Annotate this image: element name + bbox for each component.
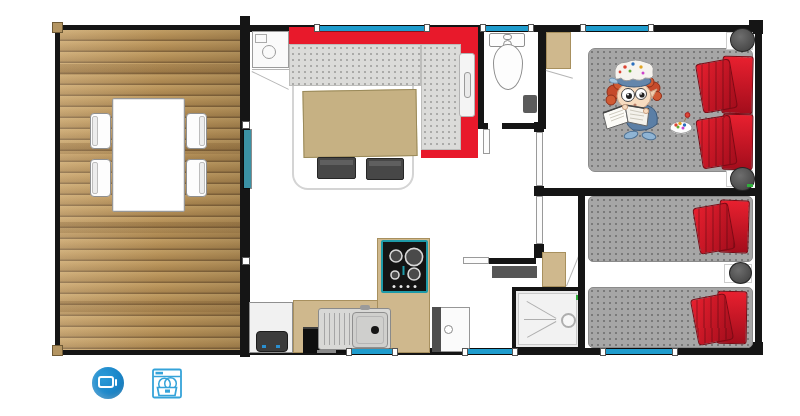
- coffee-table: [302, 89, 417, 158]
- sink-drainer-line: [334, 313, 335, 345]
- window: [352, 349, 392, 354]
- window-end-marker: [580, 24, 586, 32]
- terrace-chair: [186, 113, 207, 149]
- sink-drainer-line: [329, 313, 330, 345]
- hall-wall-low: [488, 258, 536, 264]
- door-handle-marker: [242, 121, 250, 129]
- sink-drainer-line: [339, 313, 340, 345]
- wc-bin: [523, 95, 537, 113]
- deck-corner-post: [52, 22, 63, 33]
- nightstand-top: [730, 167, 755, 191]
- window-end-marker: [346, 348, 352, 356]
- sink-faucet: [360, 305, 370, 310]
- window-end-marker: [314, 24, 320, 32]
- plan-marker: [747, 184, 753, 187]
- window: [320, 26, 424, 31]
- sink-drainer-line: [349, 313, 350, 345]
- refrigerator-ring: [262, 45, 276, 59]
- sofa-seat-horizontal: [289, 44, 421, 86]
- hall-wall-post: [534, 122, 544, 132]
- bedroom-door-leaf: [536, 132, 543, 186]
- bedroom-door-leaf: [536, 196, 543, 244]
- wall-cap: [240, 16, 250, 32]
- sofa-seat-vertical: [421, 44, 461, 150]
- hob-burners: [383, 242, 426, 291]
- nightstand-top: [729, 262, 752, 284]
- window-end-marker: [600, 348, 606, 356]
- wc-wall-left: [478, 32, 484, 123]
- terrace-chair: [186, 159, 207, 197]
- oven-handle: [317, 350, 336, 353]
- tv-screen: [98, 376, 114, 388]
- shower-drain: [561, 313, 576, 328]
- wc-wall-right: [538, 32, 546, 123]
- nightstand-top: [730, 28, 755, 52]
- bed-pillow: [695, 115, 737, 170]
- twin-bedroom-wall-left: [578, 196, 585, 348]
- hall-cabinet: [542, 252, 566, 287]
- stool: [317, 157, 356, 179]
- appliance-indicator: [276, 345, 280, 348]
- window-end-marker: [424, 24, 430, 32]
- shower-slope-line: [524, 319, 556, 320]
- window-end-marker: [392, 348, 398, 356]
- bedroom-divider-wall: [535, 188, 762, 196]
- window-end-marker: [672, 348, 678, 356]
- window: [486, 26, 528, 31]
- refrigerator-tray: [255, 34, 267, 43]
- window: [606, 349, 672, 354]
- tv-side-bar: [115, 379, 117, 386]
- kitchen-appliance-door: [256, 331, 288, 352]
- sink-drainer-line: [344, 313, 345, 345]
- window-end-marker: [648, 24, 654, 32]
- sink-drain: [371, 326, 379, 334]
- window-end-marker: [480, 24, 486, 32]
- counter-edge-line: [252, 69, 289, 70]
- window: [468, 349, 512, 354]
- wall-panel-handle: [464, 72, 471, 98]
- appliance-indicator: [262, 345, 266, 348]
- window: [586, 26, 648, 31]
- door-handle-marker: [242, 257, 250, 265]
- wardrobe: [546, 32, 571, 69]
- child-reading-illustration: [597, 58, 699, 148]
- stool: [366, 158, 404, 180]
- window-end-marker: [512, 348, 518, 356]
- water-heater-strip: [432, 307, 441, 352]
- terrace-chair: [90, 113, 111, 149]
- sink-bowl-inner: [356, 316, 384, 344]
- hall-shelf: [492, 266, 537, 278]
- sink-drainer-line: [324, 313, 325, 345]
- deck-corner-post: [52, 345, 63, 356]
- sofa-backrest-cap: [421, 150, 478, 158]
- shower-room-door-leaf: [463, 257, 489, 264]
- patio-door: [244, 130, 251, 188]
- window-end-marker: [462, 348, 468, 356]
- terrace-chair: [90, 159, 111, 197]
- tv-icon: [92, 367, 124, 399]
- wc-door-leaf: [483, 129, 490, 154]
- gas-hob: [381, 240, 428, 293]
- dishwasher-icon: [152, 368, 182, 399]
- water-heater-knob: [444, 325, 453, 334]
- floor-plan: [0, 0, 800, 416]
- terrace-table: [112, 98, 185, 212]
- window-end-marker: [528, 24, 534, 32]
